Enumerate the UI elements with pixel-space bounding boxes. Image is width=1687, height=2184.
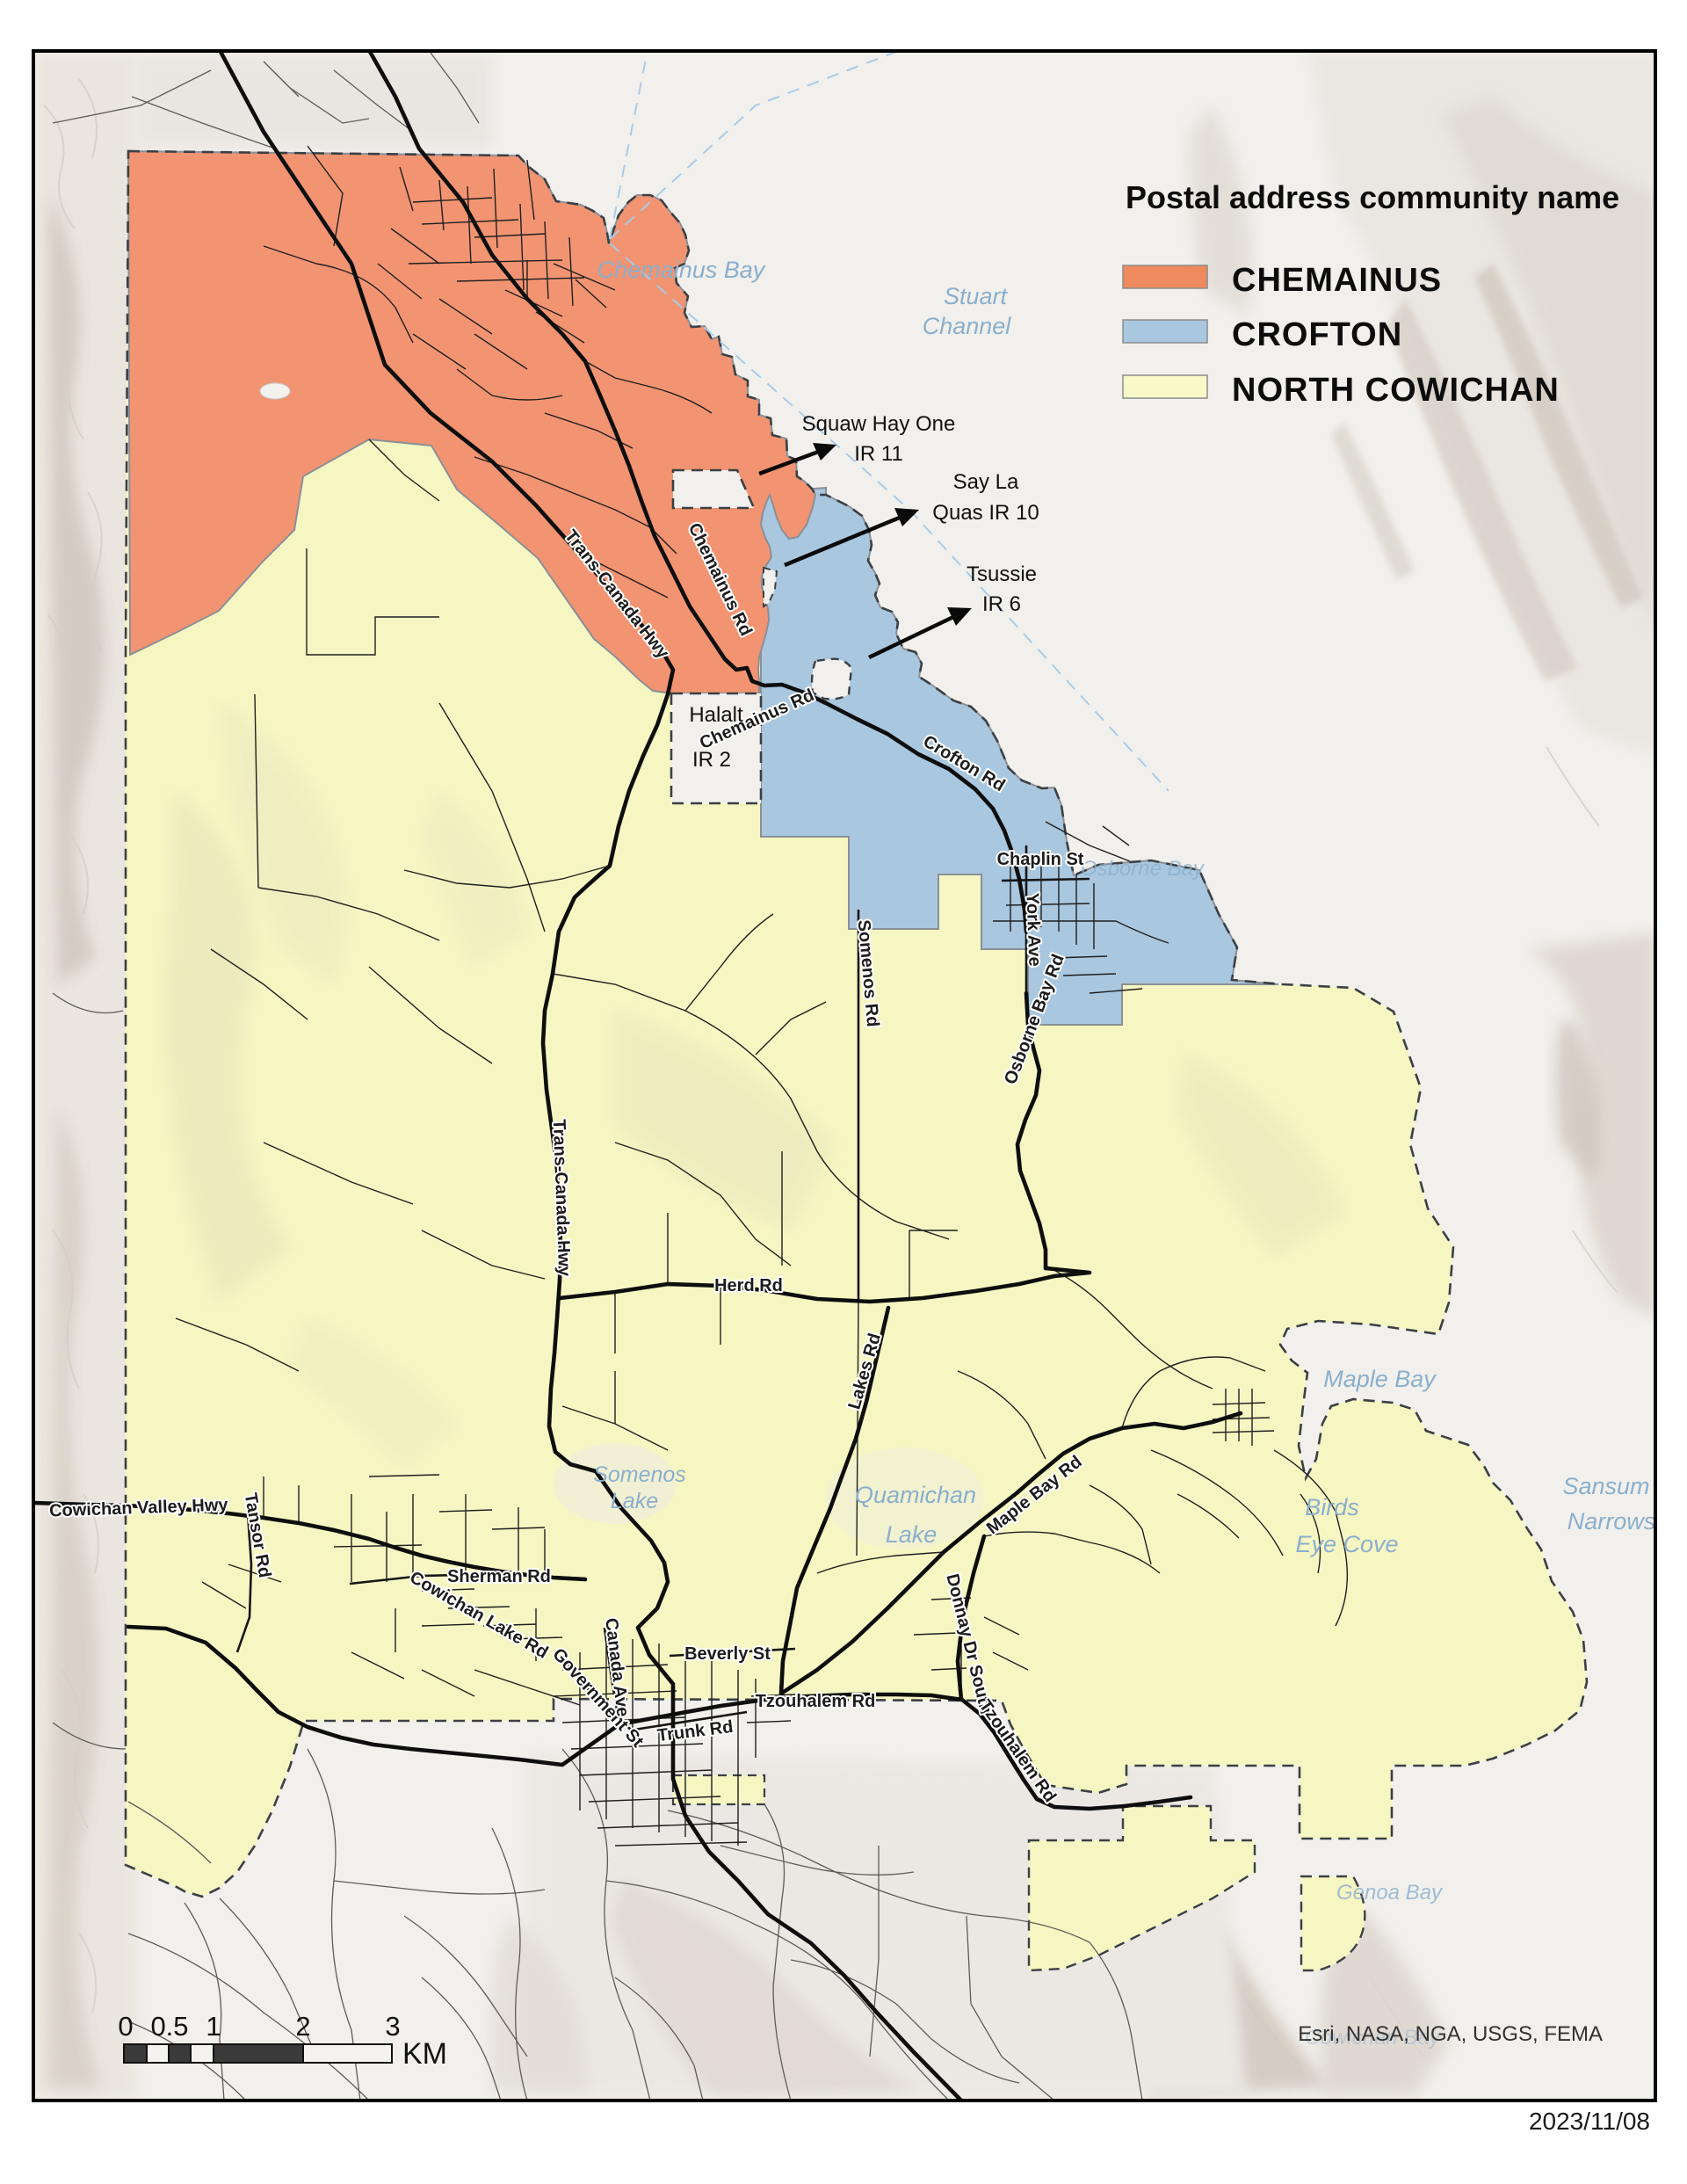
svg-text:Osborne Bay: Osborne Bay	[1081, 857, 1206, 881]
svg-text:Maple Bay: Maple Bay	[1323, 1366, 1437, 1392]
svg-text:Lake: Lake	[611, 1489, 658, 1513]
svg-text:IR 2: IR 2	[692, 748, 731, 772]
svg-text:1: 1	[206, 2011, 221, 2042]
svg-text:Eye Cove: Eye Cove	[1295, 1531, 1398, 1557]
svg-text:Somenos: Somenos	[593, 1462, 686, 1487]
svg-text:Lake: Lake	[886, 1521, 938, 1548]
svg-text:Squaw Hay One: Squaw Hay One	[802, 412, 956, 436]
svg-text:Channel: Channel	[923, 313, 1012, 339]
svg-text:Quamichan: Quamichan	[855, 1482, 976, 1508]
svg-text:NORTH COWICHAN: NORTH COWICHAN	[1232, 372, 1560, 409]
svg-text:IR 11: IR 11	[854, 442, 903, 466]
svg-text:3: 3	[385, 2011, 400, 2042]
svg-text:Herd Rd: Herd Rd	[714, 1276, 783, 1295]
svg-text:0: 0	[118, 2011, 133, 2042]
svg-text:Chemainus Bay: Chemainus Bay	[597, 257, 766, 283]
svg-text:IR 6: IR 6	[982, 592, 1021, 616]
svg-text:2: 2	[295, 2011, 310, 2042]
svg-text:Postal address community name: Postal address community name	[1126, 179, 1619, 215]
svg-text:CHEMAINUS: CHEMAINUS	[1232, 262, 1442, 299]
svg-text:Tzouhalem Rd: Tzouhalem Rd	[756, 1692, 876, 1711]
svg-text:Chaplin St: Chaplin St	[997, 850, 1084, 869]
svg-text:2023/11/08: 2023/11/08	[1529, 2108, 1650, 2135]
svg-text:Genoa Bay: Genoa Bay	[1336, 1881, 1444, 1905]
svg-text:Esri, NASA, NGA, USGS, FEMA: Esri, NASA, NGA, USGS, FEMA	[1298, 2022, 1603, 2046]
svg-text:Stuart: Stuart	[944, 283, 1009, 309]
svg-text:Halalt: Halalt	[689, 703, 743, 727]
svg-text:0.5: 0.5	[150, 2011, 188, 2042]
svg-text:Tsussie: Tsussie	[967, 562, 1037, 586]
svg-text:CROFTON: CROFTON	[1232, 316, 1402, 353]
svg-text:Beverly St: Beverly St	[684, 1644, 771, 1664]
svg-text:York Ave: York Ave	[1023, 893, 1045, 967]
svg-text:Sherman Rd: Sherman Rd	[447, 1567, 551, 1586]
svg-text:Quas IR 10: Quas IR 10	[932, 501, 1039, 525]
svg-text:KM: KM	[402, 2037, 447, 2071]
svg-text:Sansum: Sansum	[1562, 1473, 1649, 1499]
svg-text:Say La: Say La	[953, 470, 1019, 494]
svg-text:Birds: Birds	[1305, 1494, 1359, 1520]
svg-text:Narrows: Narrows	[1568, 1508, 1656, 1535]
